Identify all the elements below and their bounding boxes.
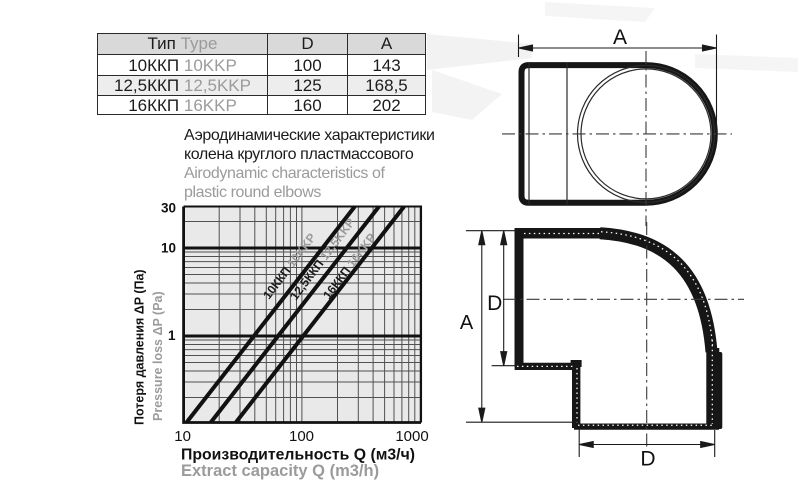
svg-text:1000: 1000 <box>395 428 428 445</box>
svg-text:1: 1 <box>168 328 176 343</box>
svg-text:Extract capacity Q (m3/h): Extract capacity Q (m3/h) <box>181 462 379 480</box>
svg-text:30: 30 <box>161 200 176 215</box>
svg-text:A: A <box>460 312 474 334</box>
svg-text:100: 100 <box>289 428 314 445</box>
svg-text:A: A <box>613 26 627 49</box>
svg-text:10: 10 <box>174 428 191 445</box>
svg-text:D: D <box>487 292 502 315</box>
svg-text:Потеря давления ΔP (Па): Потеря давления ΔP (Па) <box>133 269 147 425</box>
svg-text:10: 10 <box>161 240 176 255</box>
svg-text:D: D <box>640 448 655 471</box>
svg-text:Pressure loss ΔP (Pa): Pressure loss ΔP (Pa) <box>151 291 165 421</box>
